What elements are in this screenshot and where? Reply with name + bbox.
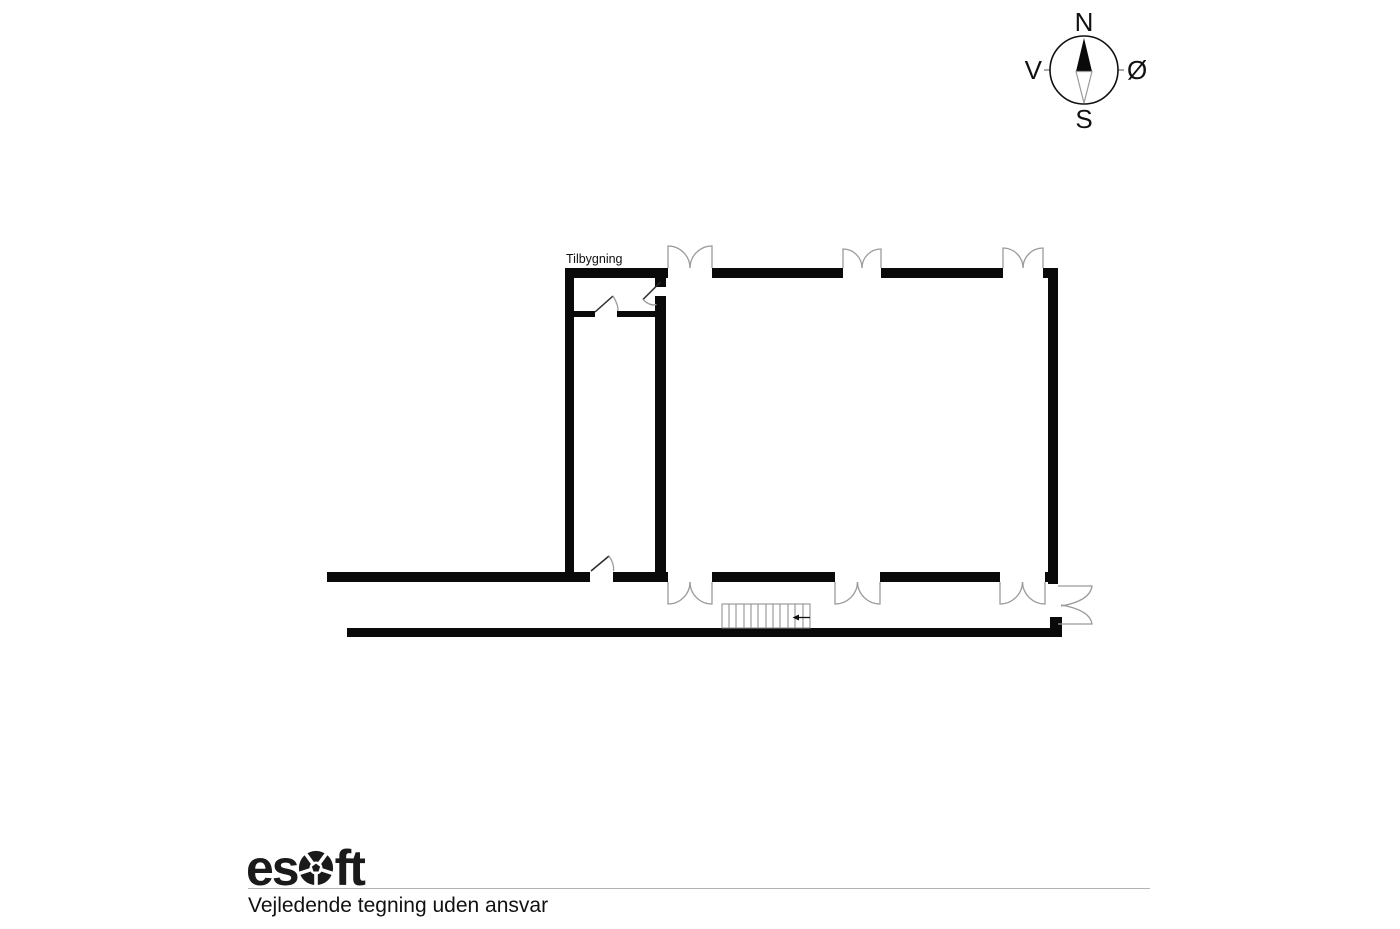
- compass-label-west: V: [1025, 55, 1043, 85]
- compass-label-south: S: [1075, 104, 1092, 134]
- wall-segment: [655, 296, 666, 582]
- double-door-symbol-top-right: [1003, 248, 1043, 268]
- wall-segment: [1050, 617, 1062, 637]
- double-door-symbol-right-side: [1058, 586, 1092, 624]
- double-door-symbol-top-middle: [843, 249, 881, 268]
- compass-label-north: N: [1075, 7, 1094, 37]
- esoft-shutter-icon: [298, 850, 334, 886]
- compass-label-east: Ø: [1127, 55, 1147, 85]
- compass-rose: N S V Ø: [1025, 7, 1148, 134]
- wall-segment: [347, 628, 1052, 637]
- extension-label: Tilbygning: [566, 252, 623, 266]
- wall-segment: [565, 268, 668, 278]
- floorplan-page: Tilbygning N S V Ø es: [0, 0, 1400, 929]
- wall-segment: [712, 572, 835, 582]
- wall-segment: [1048, 268, 1058, 584]
- floor-plan-drawing: Tilbygning N S V Ø: [0, 0, 1400, 929]
- wall-segment: [613, 572, 668, 582]
- wall-segment: [712, 268, 843, 278]
- wall-segment: [880, 572, 1000, 582]
- stairs-treads: [729, 604, 803, 628]
- exterior-walls: [327, 268, 1062, 637]
- stairs-symbol: [722, 604, 810, 628]
- double-door-symbol-bottom-right: [1000, 582, 1045, 604]
- double-door-symbol-top-left: [668, 246, 712, 268]
- single-door-symbol-extension-interior: [595, 296, 618, 312]
- wall-segment: [327, 572, 590, 582]
- double-door-symbol-bottom-left: [668, 582, 712, 604]
- disclaimer-text: Vejledende tegning uden ansvar: [248, 894, 548, 918]
- wall-segment: [567, 311, 595, 317]
- double-door-symbol-bottom-middle: [835, 582, 880, 604]
- footer-divider: [248, 888, 1150, 889]
- wall-segment: [881, 268, 1003, 278]
- wall-segment: [1045, 572, 1058, 582]
- wall-segment: [617, 311, 661, 317]
- single-door-symbol-extension-bottom: [591, 556, 614, 571]
- interior-walls: [567, 311, 661, 317]
